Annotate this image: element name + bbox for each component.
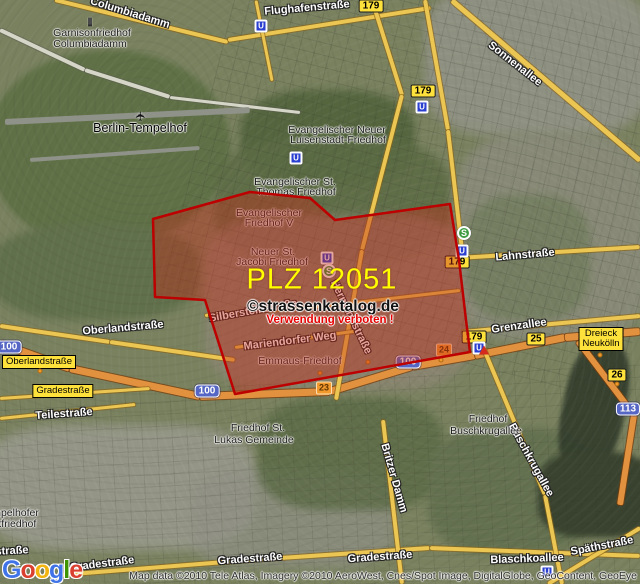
street-label-buschkrugallee: Buschkrugallee [506,421,556,498]
poi-label-parkfriedhof: Parkfriedhof [0,518,36,530]
exit-dot-icon [38,369,43,374]
google-logo-letter: e [69,556,82,584]
badge-24: 24 [436,344,452,357]
badge-oberlandstra-e: Oberlandstraße [2,355,76,369]
poi-label-emmaus-friedhof: Emmaus-Friedhof [258,355,341,367]
street-label-gradestra-e: Gradestraße [217,551,282,567]
exit-dot-icon [366,360,371,365]
exit-dot-icon [318,371,323,376]
street-label-silbersteinstra-e: Silbersteinstraße [208,297,298,324]
street-label-mariendorfer-weg: Mariendorfer Weg [243,329,337,352]
google-logo-letter: g [49,556,63,584]
monument-icon [88,18,92,27]
badge-100: 100 [0,341,21,354]
sbahn-icon: S [322,264,336,278]
badge-dreieck-neuk-lln: DreieckNeukölln [579,327,624,351]
poi-label-berlin-tempelhof: Berlin-Tempelhof [93,121,187,135]
badge-179: 179 [445,256,470,269]
street-label-sp-thstra-e: Späthstraße [570,534,635,558]
ubahn-icon: U [321,252,334,265]
street-label-columbiadamm: Columbiadamm [89,0,171,31]
ubahn-icon: U [290,152,303,165]
poi-label-lukas-gemeinde: Lukas Gemeinde [214,434,293,446]
exit-dot-icon [439,358,444,363]
ubahn-icon: U [416,101,429,114]
poi-label-columbiadamm: Columbiadamm [53,38,127,50]
street-label-lahnstra-e: Lahnstraße [495,246,555,263]
badge-25: 25 [526,333,545,346]
map-viewport[interactable]: ColumbiadammFlughafenstraßeSonnenalleeLa… [0,0,640,584]
badge-179: 179 [411,85,436,98]
badge-113: 113 [616,403,640,416]
exit-dot-icon [598,353,603,358]
poi-label-friedhof: Friedhof [469,413,508,425]
poi-label-friedhof-v: Friedhof V [245,217,293,229]
badge-179: 179 [359,0,384,13]
poi-label-tempelhofer: Tempelhofer [0,507,39,519]
poi-label-luisenstadt-friedhof: Luisenstadt-Friedhof [290,134,386,146]
google-logo-letter: o [20,556,34,584]
poi-label-friedhof-st: Friedhof St. [231,422,285,434]
airplane-icon: ✈ [133,111,149,122]
google-logo-letter: o [35,556,49,584]
badge-179: 179 [462,331,487,344]
badge-gradestra-e: Gradestraße [32,384,93,398]
street-label-britzer-damm: Britzer Damm [378,442,409,514]
street-label-gradestra-e: Gradestraße [347,549,412,565]
street-label-sonnenallee: Sonnenallee [486,39,544,88]
sbahn-icon: S [457,226,471,240]
street-label-flughafenstra-e: Flughafenstraße [264,0,350,18]
poi-label-neuer-st: Neuer St. [251,246,295,258]
street-label-teilestra-e: Teilestraße [35,406,93,422]
street-label-oberlandstra-e: Oberlandstraße [82,318,164,337]
ubahn-icon: U [456,245,469,258]
street-label-hermannstra-e: Hermannstraße [328,278,374,356]
street-label-blaschkoallee: Blaschkoallee [490,552,564,567]
poi-label-garnisonfriedhof: Garnisonfriedhof [53,27,131,39]
warning-triangle-icon [479,346,489,355]
google-logo[interactable]: Google [2,556,82,584]
badge-23: 23 [316,382,332,395]
google-logo-letter: G [2,556,20,584]
badge-26: 26 [607,369,626,382]
ubahn-icon: U [473,342,486,355]
poi-label-buschkrugallee: Buschkrugallee [450,425,522,437]
poi-label-evangelischer-neuer: Evangelischer Neuer [288,124,385,136]
badge-100: 100 [396,356,421,369]
ubahn-icon: U [255,20,268,33]
street-label-grenzallee: Grenzallee [491,316,548,336]
poi-label-evangelischer-st: Evangelischer St. [254,176,336,188]
map-attribution: Map data ©2010 Tele Atlas, Imagery ©2010… [129,570,637,582]
poi-label-evangelischer: Evangelischer [236,207,302,219]
poi-label-jacobi-friedhof: Jacobi Friedhof [236,256,308,268]
poi-label-thomas-friedhof: Thomas Friedhof [256,186,335,198]
badge-100: 100 [195,385,220,398]
labels-layer: ColumbiadammFlughafenstraßeSonnenalleeLa… [0,0,640,584]
exit-dot-icon [615,382,620,387]
